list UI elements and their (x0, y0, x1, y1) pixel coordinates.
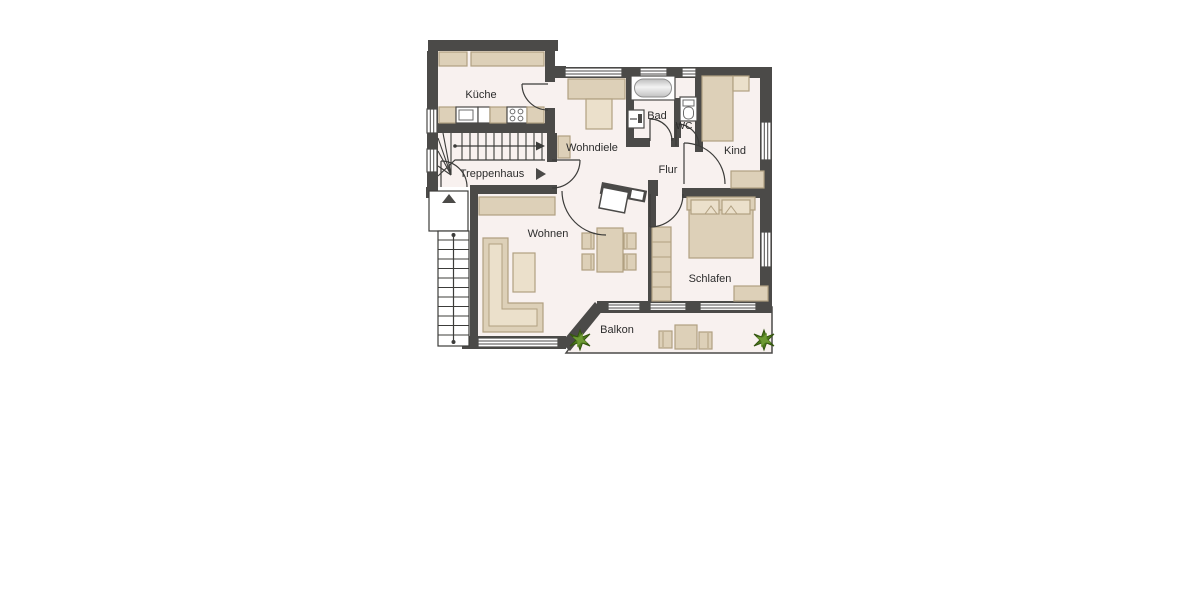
window-wohnen-south (478, 338, 558, 347)
balcony-door-west (608, 303, 640, 311)
label-schlafen: Schlafen (689, 273, 732, 285)
floorplan-page: Küche Wohndiele Bad WC Kind Flur Treppen… (0, 0, 1200, 600)
label-wohnen: Wohnen (528, 228, 569, 240)
window-schlafen-east (761, 232, 771, 267)
kitchen-stove (507, 107, 527, 123)
window-kind-east (761, 122, 771, 160)
label-flur: Flur (659, 164, 678, 176)
label-balkon: Balkon (600, 324, 634, 336)
balcony-table (675, 325, 697, 349)
coffee-table (513, 253, 535, 292)
kitchen-counter (439, 107, 456, 123)
window-wohndiele (565, 68, 622, 77)
label-bad: Bad (647, 110, 667, 122)
kitchen-counter-top-right (471, 52, 544, 66)
kitchen-dishwasher (478, 107, 490, 123)
label-wohndiele: Wohndiele (566, 142, 618, 154)
label-kueche: Küche (465, 89, 496, 101)
pillow (722, 200, 750, 214)
sideboard (479, 197, 555, 215)
bed-single (702, 76, 733, 141)
toilet (680, 97, 697, 121)
kitchen-counter-top-left (439, 52, 467, 66)
window-wc (682, 68, 696, 77)
wardrobe (568, 79, 625, 99)
floorplan-canvas: Küche Wohndiele Bad WC Kind Flur Treppen… (0, 0, 1200, 600)
bathroom-sink (628, 110, 644, 128)
label-kind: Kind (724, 145, 746, 157)
balcony-chair (699, 332, 712, 349)
balcony-door-east (650, 303, 686, 311)
exterior-staircase (429, 191, 469, 346)
pillow (691, 200, 719, 214)
window-stairwell-upper (427, 109, 437, 133)
wardrobe (652, 227, 671, 301)
window-stairwell-lower (427, 149, 437, 172)
label-treppenhaus: Treppenhaus (460, 168, 525, 180)
dresser (734, 286, 768, 301)
cabinet (731, 171, 764, 188)
balcony-chair (659, 331, 672, 348)
kitchen-counter (490, 107, 507, 123)
pillow (733, 76, 749, 91)
bed-double (689, 210, 753, 258)
bathtub (631, 76, 675, 100)
window-schlafen-south (700, 303, 756, 311)
wardrobe (586, 99, 612, 129)
kitchen-sink (456, 107, 478, 123)
label-wc: WC (676, 121, 693, 132)
